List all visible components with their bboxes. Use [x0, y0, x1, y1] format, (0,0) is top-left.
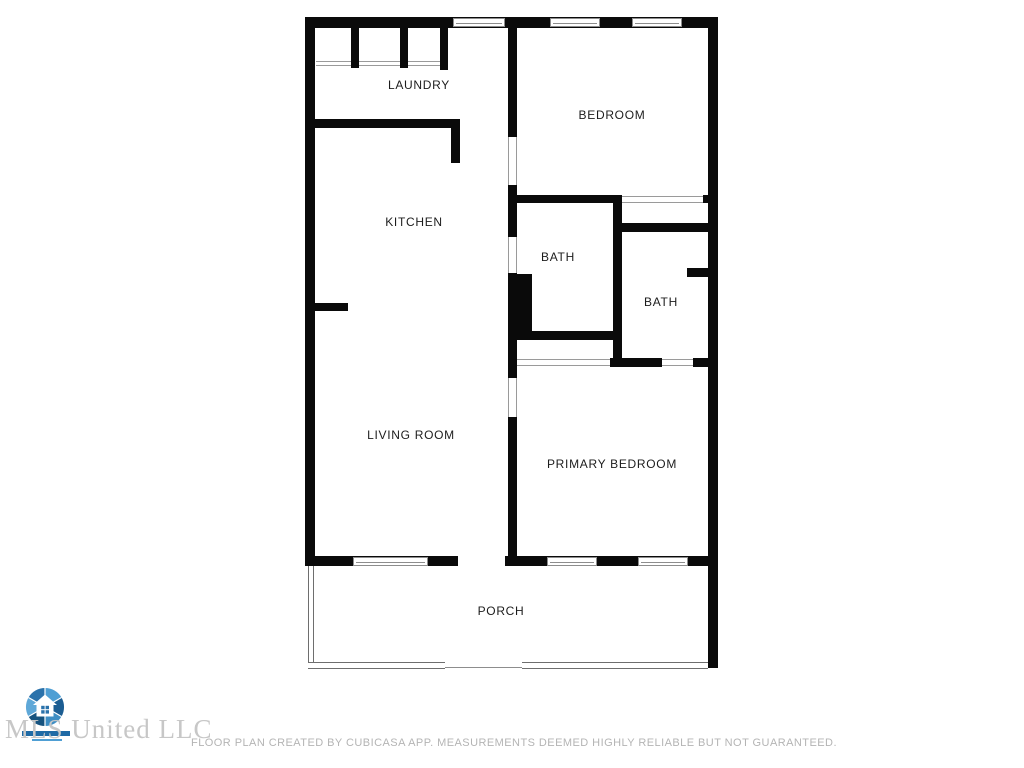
laundry-closet-door-1	[316, 61, 351, 66]
primary-bedroom-door-opening	[508, 378, 517, 417]
laundry-closet-door-2	[359, 61, 400, 66]
bedroom-closet-top-stub	[703, 195, 708, 203]
mls-united-watermark: MLS United LLC	[5, 714, 213, 745]
window-top-1	[453, 18, 505, 27]
room-label-bath-right: BATH	[644, 295, 678, 309]
laundry-closet-divider-1	[351, 28, 359, 68]
floor-plan-page: LAUNDRY BEDROOM KITCHEN BATH BATH LIVING…	[0, 0, 1024, 768]
laundry-closet-door-3	[408, 61, 440, 66]
room-label-kitchen: KITCHEN	[385, 215, 443, 229]
laundry-closet-divider-2	[400, 28, 408, 68]
window-living-room	[353, 557, 428, 566]
center-wall-seg-4	[508, 417, 517, 566]
window-top-3	[632, 18, 682, 27]
hall-bottom-wall-right	[693, 358, 708, 367]
kitchen-living-stub	[315, 303, 348, 311]
bedroom-door-opening	[508, 137, 517, 185]
exterior-wall-right	[708, 17, 718, 668]
window-top-2	[550, 18, 600, 27]
bedroom-closet-opening	[622, 196, 703, 203]
center-wall-seg-1	[508, 28, 517, 137]
window-primary-2	[638, 557, 688, 566]
primary-closet-door-opening	[517, 359, 610, 366]
room-label-living-room: LIVING ROOM	[367, 428, 455, 442]
room-label-primary-bedroom: PRIMARY BEDROOM	[547, 457, 677, 471]
bath-upper-bottom-wall	[517, 331, 613, 340]
bath-right-door-opening	[662, 359, 693, 366]
bath-upper-door-opening	[508, 237, 517, 273]
bath-right-stub-wall	[687, 268, 708, 277]
kitchen-wall-jog	[451, 128, 460, 163]
kitchen-top-wall	[315, 119, 460, 128]
porch-wall-bottom-right	[522, 662, 708, 669]
room-label-bedroom: BEDROOM	[579, 108, 646, 122]
room-label-porch: PORCH	[478, 604, 525, 618]
window-primary-1	[547, 557, 597, 566]
center-wall-seg-2	[508, 185, 517, 237]
bedroom-closet-bottom-wall	[613, 223, 708, 232]
porch-step-threshold	[445, 667, 522, 668]
bath-upper-top-wall	[517, 195, 622, 203]
bath-divider-wall	[613, 195, 622, 366]
exterior-wall-left	[305, 17, 315, 566]
footer-disclaimer: FLOOR PLAN CREATED BY CUBICASA APP. MEAS…	[191, 737, 837, 749]
plumbing-chase-block	[508, 274, 532, 333]
room-label-bath-upper: BATH	[541, 250, 575, 264]
porch-wall-left	[308, 566, 314, 669]
hall-bottom-wall-left	[610, 358, 662, 367]
room-label-laundry: LAUNDRY	[388, 78, 450, 92]
laundry-closet-right-wall	[440, 28, 448, 70]
porch-wall-bottom-left	[308, 662, 445, 669]
